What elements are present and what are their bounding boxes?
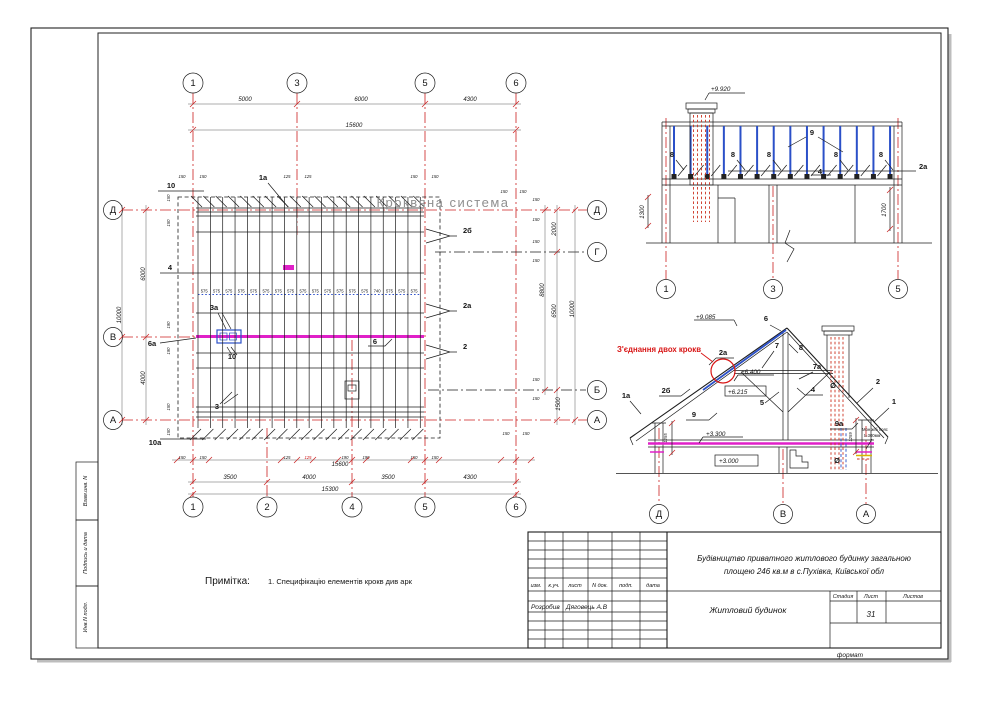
gen-label: 150 xyxy=(523,431,531,436)
gen-label: 9а xyxy=(835,419,844,428)
gen-label: 15600 xyxy=(346,123,363,129)
gen-label: Д xyxy=(656,509,663,520)
gen-label: 575 xyxy=(275,289,283,294)
gen-label: 1255 xyxy=(663,433,668,443)
gen-label: 150 xyxy=(533,377,541,382)
gen-label: 10а xyxy=(149,438,162,447)
gen-label: А xyxy=(594,415,601,426)
gen-label: 150 xyxy=(533,197,541,202)
gen-label: Д xyxy=(110,205,117,216)
gen-label: N док. xyxy=(592,583,608,589)
section-level-ridge: +9.085 xyxy=(696,314,716,321)
title-block-sheet-number: 31 xyxy=(867,610,876,619)
gen-label: 8 xyxy=(834,150,838,159)
gen-label: 575 xyxy=(361,289,369,294)
gen-label: Д xyxy=(594,205,601,216)
gen-label: к.уч. xyxy=(548,583,559,589)
gen-label: 150 xyxy=(200,455,208,460)
sheet-border xyxy=(31,28,948,659)
title-block-stage-label: Стадия xyxy=(833,594,854,600)
gen-label: 2000 xyxy=(552,222,558,237)
gen-label: 6500 xyxy=(552,304,558,318)
gen-label: 1 xyxy=(892,397,896,406)
gen-label: 2а xyxy=(463,301,472,310)
gen-label: 8 xyxy=(879,150,883,159)
gen-label: 8800 xyxy=(540,283,546,297)
gen-label: 575 xyxy=(349,289,357,294)
gen-label: 150 xyxy=(411,174,419,179)
gen-label: 3500 xyxy=(223,475,237,481)
post-base xyxy=(672,174,677,179)
elevation-callout-2a: 2а xyxy=(919,162,928,171)
gen-label: 575 xyxy=(250,289,258,294)
gen-label: 1700 xyxy=(882,203,888,217)
title-block-role: Розробив xyxy=(531,603,560,611)
gen-label: 575 xyxy=(201,289,209,294)
post-base xyxy=(721,174,726,179)
gen-label: 8 xyxy=(731,150,735,159)
note-text: 1. Специфікацію елементів крокв див арк xyxy=(268,577,413,586)
gen-label: 150 xyxy=(533,239,541,244)
gen-label: 6 xyxy=(373,337,377,346)
gen-label: 150 xyxy=(166,403,171,411)
title-block-sheets-label: Листов xyxy=(902,594,923,600)
gen-label: 6 xyxy=(764,314,768,323)
gen-label: 4300 xyxy=(463,97,477,103)
gen-label: 150 xyxy=(533,217,541,222)
gen-label: 575 xyxy=(324,289,332,294)
gen-label: 575 xyxy=(225,289,233,294)
gen-label: подп. xyxy=(619,583,633,589)
gen-label: 1а xyxy=(622,391,631,400)
gen-label: 3а xyxy=(210,303,219,312)
post-base xyxy=(755,174,760,179)
gen-label: 5 xyxy=(422,502,427,513)
gen-label: 150 xyxy=(503,431,511,436)
gen-label: 1 xyxy=(663,284,668,295)
gen-label: 575 xyxy=(337,289,345,294)
gen-label: изм. xyxy=(531,583,542,589)
gen-label: 4000 xyxy=(141,371,147,385)
section-level-collar-bottom: +6.215 xyxy=(728,389,748,396)
format-label: формат xyxy=(837,652,864,659)
gen-label: 575 xyxy=(213,289,221,294)
gen-label: 10 xyxy=(228,352,236,361)
gen-label: 1 xyxy=(190,78,195,89)
gen-label: 3500 xyxy=(381,475,395,481)
gen-label: 10000 xyxy=(117,306,123,323)
gen-label: 150 xyxy=(200,174,208,179)
gen-label: 7 xyxy=(775,341,779,350)
gen-label: дата xyxy=(646,583,660,589)
gen-label: 2 xyxy=(264,502,269,513)
gen-label: Ø xyxy=(830,381,836,390)
gen-label: 2 xyxy=(876,377,880,386)
gen-label: Подпись и дата xyxy=(83,532,89,574)
gen-label: 5 xyxy=(422,78,427,89)
gen-label: 125 xyxy=(305,455,313,460)
gen-label: 1 xyxy=(190,502,195,513)
drawing-sheet: Кроквяна система 57557557557557557557557… xyxy=(0,0,1000,706)
gen-label: 6а xyxy=(148,339,157,348)
gen-label: 150 xyxy=(432,455,440,460)
gen-label: 150 xyxy=(432,174,440,179)
gen-label: 4300 xyxy=(463,475,477,481)
gen-label: 2б xyxy=(463,226,472,235)
gen-label: 575 xyxy=(398,289,406,294)
gen-label: 190 xyxy=(342,455,350,460)
gen-label: лист xyxy=(567,583,582,589)
post-base xyxy=(738,174,743,179)
gen-label: 125 xyxy=(305,174,313,179)
post-base xyxy=(688,174,693,179)
section-belt-note-2: t=300мм xyxy=(864,433,880,438)
gen-label: 5 xyxy=(760,398,764,407)
gen-label: 8 xyxy=(767,150,771,159)
post-base xyxy=(771,174,776,179)
section-level-collar-top: +6.400 xyxy=(741,369,761,376)
gen-label: 4000 xyxy=(302,475,316,481)
gen-label: 150 xyxy=(533,396,541,401)
gen-label: Инв.N подл. xyxy=(83,602,89,633)
gen-label: 8 xyxy=(799,343,803,352)
gen-label: Взам.инв. N xyxy=(83,476,89,507)
gen-label: 6000 xyxy=(141,267,147,281)
gen-label: 1а xyxy=(259,173,268,182)
gen-label: 2 xyxy=(463,342,467,351)
gen-label: 5000 xyxy=(238,97,252,103)
gen-label: 8 xyxy=(670,150,674,159)
plan-title: Кроквяна система xyxy=(376,195,509,210)
gen-label: 575 xyxy=(411,289,419,294)
post-base xyxy=(838,174,843,179)
sheet-shadow-right xyxy=(949,34,952,662)
gen-label: В xyxy=(780,509,786,520)
gen-label: А xyxy=(863,509,870,520)
gen-label: 150 xyxy=(166,428,171,436)
gen-label: 125 xyxy=(284,174,292,179)
gen-label: 10 xyxy=(167,181,175,190)
gen-label: Г xyxy=(594,247,599,258)
gen-label: 150 xyxy=(166,194,171,202)
title-block-object: Житловий будинок xyxy=(709,605,788,615)
gen-label: 6 xyxy=(513,78,518,89)
gen-label: 575 xyxy=(262,289,270,294)
gen-label: 6000 xyxy=(354,97,368,103)
gen-label: 575 xyxy=(386,289,394,294)
note-label: Примітка: xyxy=(205,576,250,587)
gen-label: 6 xyxy=(513,502,518,513)
gen-label: 1300 xyxy=(640,205,646,219)
gen-label: 740 xyxy=(374,289,382,294)
section-level-floor: +3.000 xyxy=(719,458,739,465)
gen-label: 150 xyxy=(533,258,541,263)
gen-label: Ø xyxy=(834,456,840,465)
gen-label: 575 xyxy=(238,289,246,294)
gen-label: 575 xyxy=(312,289,320,294)
elevation-level: +9.920 xyxy=(711,86,731,93)
post-base xyxy=(888,174,893,179)
gen-label: 15300 xyxy=(322,487,339,493)
gen-label: 5 xyxy=(895,284,900,295)
gen-label: 1259 xyxy=(848,432,853,442)
gen-label: 3 xyxy=(294,78,299,89)
title-block-project-2: площею 246 кв.м в с.Пухівка, Київської о… xyxy=(724,567,885,576)
gen-label: 2б xyxy=(662,386,671,395)
gen-label: 575 xyxy=(287,289,295,294)
post-base xyxy=(788,174,793,179)
gen-label: 150 xyxy=(166,219,171,227)
gen-label: В xyxy=(110,332,116,343)
gen-label: 10000 xyxy=(570,300,576,317)
post-base xyxy=(804,174,809,179)
gen-label: 150 xyxy=(179,174,187,179)
section-belt-note-1: Мон.ж/б пояс xyxy=(862,427,888,432)
gen-label: 7а xyxy=(813,362,822,371)
title-block-name: Дяговець А.В xyxy=(565,604,608,611)
title-block-project-1: Будівництво приватного житлового будинку… xyxy=(697,554,911,563)
gen-label: А xyxy=(110,415,117,426)
gen-label: 150 xyxy=(520,189,528,194)
gen-label: Б xyxy=(594,385,600,396)
gen-label: 4 xyxy=(349,502,354,513)
post-base xyxy=(854,174,859,179)
gen-label: 3 xyxy=(770,284,775,295)
gen-label: 1500 xyxy=(556,397,562,411)
section-annotation: З'єднання двох крокв xyxy=(617,345,701,354)
gen-label: 3 xyxy=(215,402,219,411)
gen-label: 190 xyxy=(166,347,171,355)
sheet-shadow-bottom xyxy=(37,660,951,663)
post-base xyxy=(871,174,876,179)
gen-label: 9 xyxy=(692,410,696,419)
section-level-slab: +3.300 xyxy=(706,431,726,438)
gen-label: 190 xyxy=(166,321,171,329)
gen-label: 150 xyxy=(501,189,509,194)
gen-label: 2а xyxy=(719,348,728,357)
elevation-callout-9: 9 xyxy=(810,128,814,137)
gen-label: 125 xyxy=(284,455,292,460)
gen-label: 575 xyxy=(300,289,308,294)
title-block-sheet-label: Лист xyxy=(863,594,879,600)
gen-label: 15600 xyxy=(332,462,349,468)
